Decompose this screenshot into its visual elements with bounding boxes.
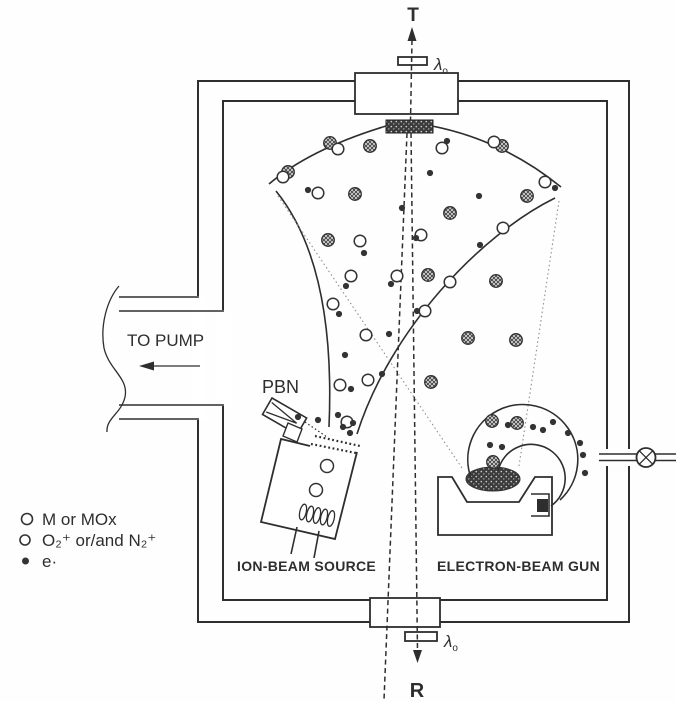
particle-molecule	[487, 456, 500, 469]
particle-ion	[277, 171, 289, 183]
electron-beam-gun: ELECTRON-BEAM GUN	[437, 404, 600, 574]
particle-ion	[360, 329, 372, 341]
ion-beam-source: PBN ION-BEAM SOURCE	[237, 377, 376, 574]
top-lambda-label: λo	[433, 55, 448, 77]
particle-electron	[399, 205, 405, 211]
particle-ion	[354, 235, 366, 247]
particle-molecule	[425, 376, 438, 389]
particle-ion	[345, 270, 357, 282]
particle-electron	[413, 235, 419, 241]
top-lambda-window	[398, 57, 427, 65]
egun-melt-pool	[466, 467, 520, 491]
legend-label-electrons: e·	[42, 552, 57, 571]
source-aperture-1	[321, 460, 334, 473]
particle-electron	[342, 352, 348, 358]
particle-electron	[414, 308, 420, 314]
particle-molecule	[422, 269, 435, 282]
particle-ion	[539, 176, 551, 188]
t-axis-arrow-head	[408, 27, 417, 41]
top-port	[355, 73, 458, 114]
particle-molecule	[511, 417, 524, 430]
particle-electron	[552, 185, 558, 191]
legend-label-molecules: M or MOx	[42, 510, 117, 529]
particle-electron	[388, 281, 394, 287]
particle-ion	[327, 298, 339, 310]
extraction-grid-row-2	[315, 436, 360, 446]
pbn-effusion-dotted	[305, 422, 327, 437]
r-axis-arrow-head	[413, 650, 422, 663]
particle-electron	[386, 331, 392, 337]
particle-electron	[565, 430, 571, 436]
particle-molecule	[486, 415, 499, 428]
particle-electron	[340, 424, 346, 430]
sightline-right-dotted	[519, 201, 559, 466]
particle-electron	[295, 414, 301, 420]
particle-molecule	[364, 140, 377, 153]
bottom-port-assembly: R λo	[370, 133, 458, 702]
ion-plume-right-edge	[357, 198, 555, 434]
particle-molecule	[462, 332, 475, 345]
particle-electron	[348, 386, 354, 392]
substrate	[386, 120, 433, 133]
particle-ion	[497, 222, 509, 234]
particle-electron	[530, 424, 536, 430]
particle-ion	[334, 379, 346, 391]
source-lead-left	[291, 527, 297, 554]
particle-electron	[476, 193, 482, 199]
particle-ion	[391, 270, 403, 282]
r-axis-dashed-line	[411, 133, 418, 651]
particle-electron	[487, 442, 493, 448]
particle-electron	[499, 444, 505, 450]
particle-electron	[505, 422, 511, 428]
particle-electron	[580, 452, 586, 458]
r-axis-label: R	[410, 680, 425, 702]
wall-gap-pump-inner	[217, 310, 231, 406]
bottom-port	[370, 598, 440, 627]
particle-ion	[312, 187, 324, 199]
particle-molecule	[490, 275, 503, 288]
particle-molecule	[510, 334, 523, 347]
particle-ion	[444, 276, 456, 288]
legend-filled-dot-icon	[22, 558, 29, 565]
particle-ion	[419, 305, 431, 317]
particle-molecule	[349, 188, 362, 201]
particle-electron	[577, 440, 583, 446]
particle-electron	[582, 470, 588, 476]
legend: M or MOx O₂⁺ or/and N₂⁺ e·	[20, 510, 156, 571]
top-port-assembly: T λo	[355, 5, 458, 121]
particle-ion	[332, 143, 344, 155]
particle-electron	[335, 412, 341, 418]
electron-beam-gun-label: ELECTRON-BEAM GUN	[437, 558, 600, 574]
particle-molecule	[521, 190, 534, 203]
particle-electron	[350, 420, 356, 426]
particle-electron	[336, 311, 342, 317]
wall-gap-feedthrough	[593, 449, 634, 466]
particle-molecule	[322, 234, 335, 247]
source-aperture-2	[310, 484, 323, 497]
duct-break-squiggle	[103, 286, 126, 432]
chamber-walls	[192, 81, 634, 622]
bottom-lambda-window	[405, 632, 437, 641]
wall-gap-pump-outer	[192, 296, 206, 420]
particle-electron	[361, 250, 367, 256]
chamber-outer-wall	[198, 81, 629, 622]
particle-electron	[305, 187, 311, 193]
legend-open-circle-small-icon	[20, 535, 30, 545]
particle-ion	[488, 136, 500, 148]
egun-filament	[537, 499, 548, 512]
particle-electron	[315, 417, 321, 423]
particle-electron	[343, 283, 349, 289]
bottom-lambda-label: λo	[443, 632, 458, 654]
particle-electron	[477, 242, 483, 248]
particle-electron	[550, 419, 556, 425]
particle-electron	[540, 427, 546, 433]
t-axis-label: T	[407, 5, 419, 26]
deposition-chamber-diagram: TO PUMP T λo R λo	[0, 0, 676, 702]
particle-electron	[347, 430, 353, 436]
ion-beam-source-label: ION-BEAM SOURCE	[237, 558, 376, 574]
pbn-label: PBN	[262, 377, 299, 397]
to-pump-label: TO PUMP	[127, 331, 204, 350]
particle-electron	[379, 371, 385, 377]
legend-label-ions: O₂⁺ or/and N₂⁺	[42, 531, 156, 550]
legend-open-circle-large-icon	[22, 514, 33, 525]
pump-arrow-head	[139, 362, 154, 371]
particle-electron	[444, 138, 450, 144]
particle-ion	[362, 374, 374, 386]
deposition-chamber-figure: TO PUMP T λo R λo	[0, 0, 676, 702]
particle-electron	[427, 170, 433, 176]
particle-molecule	[444, 207, 457, 220]
